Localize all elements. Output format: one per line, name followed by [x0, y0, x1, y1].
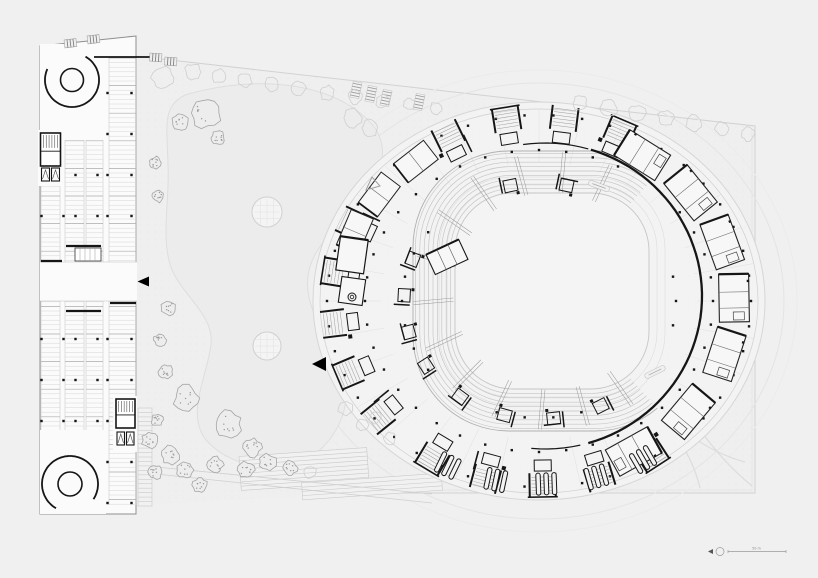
column-dot	[581, 482, 583, 484]
column-dot	[106, 215, 108, 217]
column-dot	[672, 324, 674, 326]
column-dot	[130, 379, 132, 381]
column-dot	[436, 422, 438, 424]
column-dot	[710, 323, 712, 325]
column-dot	[661, 407, 663, 409]
column-dot	[74, 338, 76, 340]
column-dot	[326, 300, 328, 302]
column-dot	[96, 338, 98, 340]
scale-bar: 50 m	[708, 547, 786, 556]
column-dot	[617, 434, 619, 436]
column-dot	[74, 215, 76, 217]
column-dot	[742, 350, 744, 352]
column-dot	[40, 420, 42, 422]
north-arrow-circle	[716, 548, 724, 556]
clear-zone	[40, 262, 137, 301]
column-dot	[416, 452, 418, 454]
column-dot	[366, 323, 368, 325]
skylight-circle	[252, 197, 282, 227]
column-dot	[742, 250, 744, 252]
column-dot	[679, 211, 681, 213]
hatched-bar	[87, 35, 100, 44]
column-dot	[96, 420, 98, 422]
column-dot	[511, 151, 513, 153]
column-dot	[511, 449, 513, 451]
ramp-band	[138, 408, 152, 506]
column-dot	[383, 231, 385, 233]
column-dot	[580, 411, 582, 413]
column-dot	[523, 114, 525, 116]
column-dot	[750, 300, 752, 302]
column-dot	[565, 151, 567, 153]
column-dot	[334, 350, 336, 352]
hatched-bar	[164, 57, 177, 66]
column-dot	[672, 275, 674, 277]
column-dot	[693, 231, 695, 233]
column-dot	[538, 451, 540, 453]
tree-dark	[151, 415, 163, 426]
north-arrow-icon	[708, 549, 713, 554]
column-dot	[106, 92, 108, 94]
hatched-bar	[64, 39, 77, 48]
column-dot	[427, 231, 429, 233]
column-dot	[130, 174, 132, 176]
column-dot	[538, 149, 540, 151]
scale-bar-label: 50 m	[752, 547, 761, 551]
bench-group	[484, 467, 509, 493]
column-dot	[719, 396, 721, 398]
hatched-bar	[149, 53, 162, 62]
column-dot	[397, 211, 399, 213]
column-dot	[74, 174, 76, 176]
site-plan: 50 m	[0, 0, 818, 578]
column-dot	[364, 300, 366, 302]
stadium	[313, 102, 765, 500]
column-dot	[495, 411, 497, 413]
column-dot	[40, 379, 42, 381]
skylight-circle	[253, 332, 281, 360]
column-dot	[130, 502, 132, 504]
column-dot	[404, 275, 406, 277]
column-dot	[366, 276, 368, 278]
column-dot	[581, 118, 583, 120]
column-dot	[334, 250, 336, 252]
column-dot	[106, 502, 108, 504]
column-dot	[106, 461, 108, 463]
column-dot	[679, 389, 681, 391]
column-dot	[712, 300, 714, 302]
column-dot	[415, 407, 417, 409]
column-dot	[710, 276, 712, 278]
aisle-room	[75, 248, 101, 261]
column-dot	[748, 325, 750, 327]
column-dot	[415, 193, 417, 195]
bench-group	[536, 473, 557, 496]
column-dot	[40, 338, 42, 340]
column-dot	[74, 420, 76, 422]
column-dot	[130, 92, 132, 94]
column-dot	[640, 422, 642, 424]
playing-field	[455, 193, 649, 389]
column-dot	[592, 443, 594, 445]
column-dot	[106, 420, 108, 422]
column-dot	[130, 133, 132, 135]
column-dot	[106, 338, 108, 340]
column-dot	[459, 434, 461, 436]
column-dot	[130, 338, 132, 340]
column-dot	[106, 133, 108, 135]
column-dot	[427, 369, 429, 371]
column-dot	[106, 379, 108, 381]
column-dot	[372, 253, 374, 255]
column-dot	[436, 178, 438, 180]
column-dot	[459, 165, 461, 167]
column-dot	[74, 379, 76, 381]
column-dot	[96, 215, 98, 217]
tree-dark	[191, 100, 220, 129]
column-dot	[130, 461, 132, 463]
column-dot	[693, 368, 695, 370]
column-dot	[565, 449, 567, 451]
column-dot	[106, 174, 108, 176]
column-dot	[62, 215, 64, 217]
column-dot	[523, 485, 525, 487]
ring-room	[719, 274, 750, 323]
column-dot	[703, 346, 705, 348]
column-dot	[467, 125, 469, 127]
column-dot	[383, 368, 385, 370]
column-dot	[592, 156, 594, 158]
column-dot	[62, 338, 64, 340]
column-dot	[96, 174, 98, 176]
column-dot	[703, 253, 705, 255]
column-dot	[62, 420, 64, 422]
column-dot	[523, 416, 525, 418]
column-dot	[617, 165, 619, 167]
floor-plan-canvas: 50 m	[0, 0, 818, 578]
column-dot	[372, 346, 374, 348]
column-dot	[397, 389, 399, 391]
column-dot	[719, 203, 721, 205]
column-dot	[130, 215, 132, 217]
column-dot	[552, 416, 554, 418]
west-entrance-cluster	[336, 236, 368, 305]
column-dot	[373, 417, 375, 419]
column-dot	[62, 379, 64, 381]
column-dot	[484, 156, 486, 158]
column-dot	[413, 347, 415, 349]
tree-dark	[211, 131, 224, 145]
column-dot	[467, 475, 469, 477]
column-dot	[675, 300, 677, 302]
column-dot	[357, 396, 359, 398]
column-dot	[40, 215, 42, 217]
column-dot	[484, 443, 486, 445]
column-dot	[96, 379, 98, 381]
